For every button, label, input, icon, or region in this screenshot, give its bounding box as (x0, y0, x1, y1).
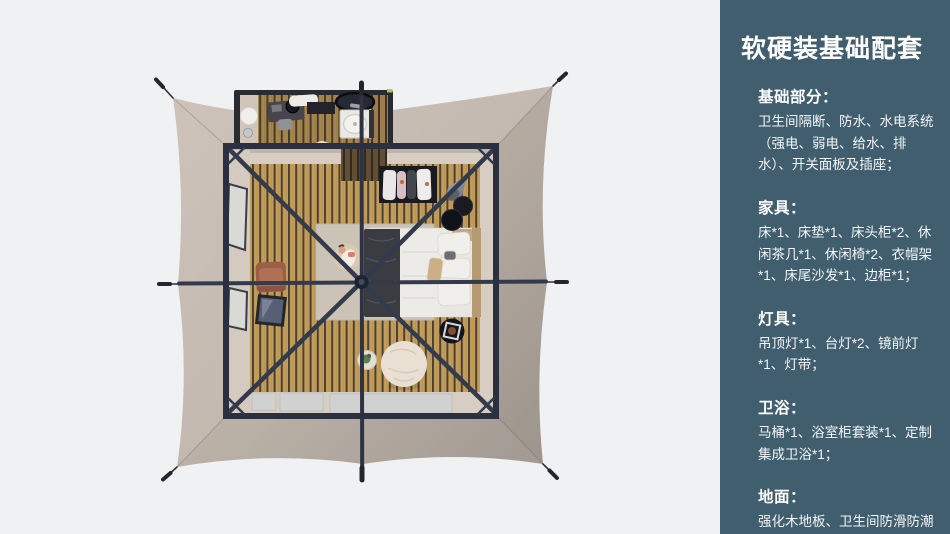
section-lighting-heading: 灯具： (758, 307, 936, 329)
section-furniture-heading: 家具： (758, 196, 936, 218)
section-flooring-heading: 地面： (758, 485, 936, 507)
section-flooring: 地面： 强化木地板、卫生间防滑防潮石塑板； (758, 485, 936, 534)
vanity-stool (278, 118, 293, 130)
floor-mirror (257, 296, 286, 326)
section-bathroom: 卫浴： 马桶*1、浴室柜套装*1、定制集成卫浴*1； (758, 396, 936, 465)
section-bathroom-body: 马桶*1、浴室柜套装*1、定制集成卫浴*1； (758, 422, 936, 465)
headboard (472, 228, 481, 317)
section-furniture: 家具： 床*1、床垫*1、床头柜*2、休闲茶几*1、休闲椅*2、衣帽架*1、床尾… (758, 196, 936, 287)
info-panel: 软硬装基础配套 基础部分： 卫生间隔断、防水、水电系统（强电、弱电、给水、排水）… (720, 0, 950, 534)
pedestal-table (241, 108, 258, 125)
panel-title: 软硬装基础配套 (741, 34, 936, 65)
slide: 软硬装基础配套 基础部分： 卫生间隔断、防水、水电系统（强电、弱电、给水、排水）… (0, 0, 950, 534)
section-lighting: 灯具： 吊顶灯*1、台灯*2、镜前灯*1、灯带； (758, 307, 936, 376)
toilet (244, 129, 253, 138)
light-marker (387, 89, 393, 93)
section-bathroom-heading: 卫浴： (758, 396, 936, 418)
bathroom (234, 89, 393, 147)
section-basics-heading: 基础部分： (758, 85, 936, 107)
section-basics-body: 卫生间隔断、防水、水电系统（强电、弱电、给水、排水）、开关面板及插座； (758, 111, 936, 176)
counter (307, 102, 335, 114)
clothes-rack (379, 166, 437, 203)
floorplan-render (0, 0, 720, 534)
armchair (255, 261, 286, 292)
section-flooring-body: 强化木地板、卫生间防滑防潮石塑板； (758, 511, 936, 534)
oval-mirror (336, 93, 374, 111)
section-furniture-body: 床*1、床垫*1、床头柜*2、休闲茶几*1、休闲椅*2、衣帽架*1、床尾沙发*1… (758, 222, 936, 287)
round-tray-table (440, 319, 465, 344)
section-lighting-body: 吊顶灯*1、台灯*2、镜前灯*1、灯带； (758, 333, 936, 376)
section-basics: 基础部分： 卫生间隔断、防水、水电系统（强电、弱电、给水、排水）、开关面板及插座… (758, 85, 936, 176)
entry-mats (252, 393, 452, 413)
